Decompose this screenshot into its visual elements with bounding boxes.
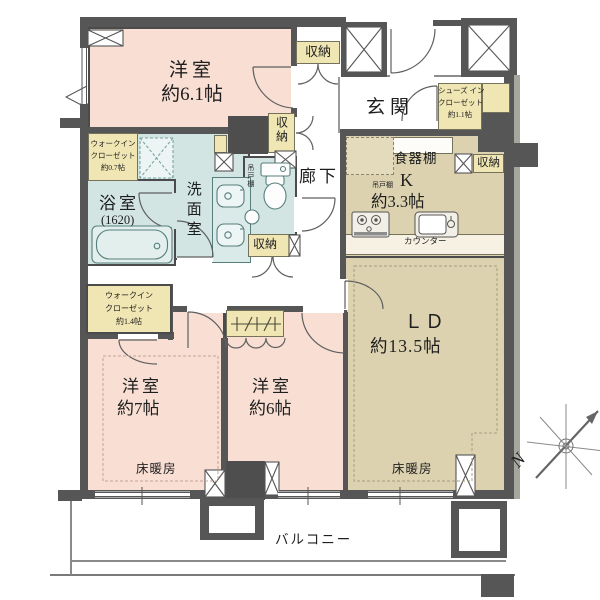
door-storage-top [298, 64, 338, 84]
storage-hall-label: 収納 [274, 116, 287, 144]
wall-left-upper [80, 17, 88, 48]
bedroom61-size-label: 約6.1帖 [151, 84, 233, 105]
wall-south-stub [58, 490, 82, 501]
sic-label: シューズ イン クローゼット 約1.1帖 [438, 85, 482, 121]
bedroom61-name-label: 洋室 [158, 60, 226, 81]
kitchen-cupboard-label: 吊戸棚 [372, 182, 393, 190]
ld-floor-heating-label: 床暖房 [392, 462, 433, 476]
bath-name-label: 浴室 [99, 194, 139, 213]
storage-kitchen-label: 収納 [477, 157, 500, 170]
ld-name-label: ＬＤ [404, 312, 446, 333]
pillar-top-right [461, 18, 517, 77]
wall-bedroom6-ld [343, 312, 348, 497]
pillar-bottom-center [226, 461, 265, 500]
wic14-line1: ウォークイン [90, 290, 168, 303]
wall-hall-kitchen [340, 131, 346, 281]
hallway-label: 廊下 [299, 167, 339, 186]
wall-south [80, 490, 506, 499]
storage-toilet-label: 収納 [253, 238, 277, 251]
bedroom6-name-label: 洋室 [252, 377, 292, 396]
room-living-dining [343, 256, 506, 497]
doorway-entrance [390, 74, 434, 78]
doorway-ld [340, 279, 348, 310]
floor-plan: 洋室 約6.1帖 収納 収納 収納 収納 玄関 シューズ イン クローゼット 約… [0, 0, 600, 600]
counter-label: カウンター [404, 237, 447, 247]
cupboard-label: 食器棚 [394, 151, 438, 166]
doorway-bedroom7 [187, 306, 227, 313]
wic14-line2: クローゼット [90, 303, 168, 316]
balcony-label: バルコニー [275, 532, 352, 547]
bedroom7-name-label: 洋室 [122, 377, 162, 396]
door-storage-toilet [252, 257, 293, 277]
balcony-partition-inner [459, 509, 500, 551]
doorway-washroom [177, 257, 213, 262]
washroom-cabinet [214, 135, 227, 153]
wic07-line3: 約0.7帖 [89, 162, 137, 174]
pipe-duct [228, 116, 268, 154]
bedroom6-size-label: 約6帖 [249, 399, 292, 418]
door-toilet [302, 198, 335, 231]
toilet-cupboard-label: 吊戸棚 [246, 164, 254, 188]
doorway-bedroom6 [303, 306, 344, 313]
sic-line2: クローゼット [438, 97, 482, 109]
balcony-outer-line [50, 574, 515, 576]
sic-line1: シューズ イン [438, 85, 482, 97]
bedroom7-size-label: 約7帖 [117, 399, 160, 418]
vanity-counter [212, 177, 251, 263]
washroom-label: 洗面室 [184, 181, 201, 241]
wic14-line3: 約1.4帖 [90, 316, 168, 329]
door-entrance [391, 29, 435, 73]
wall-right-outer [514, 75, 520, 499]
pillar-top-center [341, 22, 387, 77]
doorway-bath [173, 193, 178, 229]
balcony-corner-block [481, 574, 514, 597]
wall-top [80, 17, 346, 27]
compass-icon [527, 404, 600, 489]
kitchen-size-label: 約3.3帖 [371, 193, 425, 211]
balcony-pillar-inner [209, 506, 255, 533]
storage-top-label: 収納 [297, 45, 339, 60]
kitchen-name-label: K [400, 170, 413, 190]
bedroom7-floor-heating-label: 床暖房 [136, 462, 177, 476]
entrance-step-line [338, 77, 340, 133]
balcony-left-line [70, 500, 72, 575]
wic07-line2: クローゼット [89, 150, 137, 162]
sic-box-ext [482, 83, 510, 113]
doorway-toilet [294, 197, 299, 232]
sic-line3: 約1.1帖 [438, 109, 482, 121]
wic07-line1: ウォークイン [89, 138, 137, 150]
wall-left-stub [60, 118, 82, 128]
refrigerator-space [346, 137, 394, 175]
door-storage-hall [296, 116, 313, 150]
wall-right-stub [514, 143, 538, 167]
wic07-label: ウォークイン クローゼット 約0.7帖 [89, 138, 137, 174]
doorway-bedroom61 [291, 66, 297, 108]
wic14-label: ウォークイン クローゼット 約1.4帖 [90, 290, 168, 328]
bath-size-label: (1620) [101, 213, 134, 227]
entrance-label: 玄関 [366, 97, 414, 118]
bedroom6-closet-box [226, 310, 284, 337]
wall-right-chunk [478, 111, 508, 152]
balcony-rail-line [70, 560, 506, 562]
ld-size-label: 約13.5帖 [370, 337, 442, 357]
